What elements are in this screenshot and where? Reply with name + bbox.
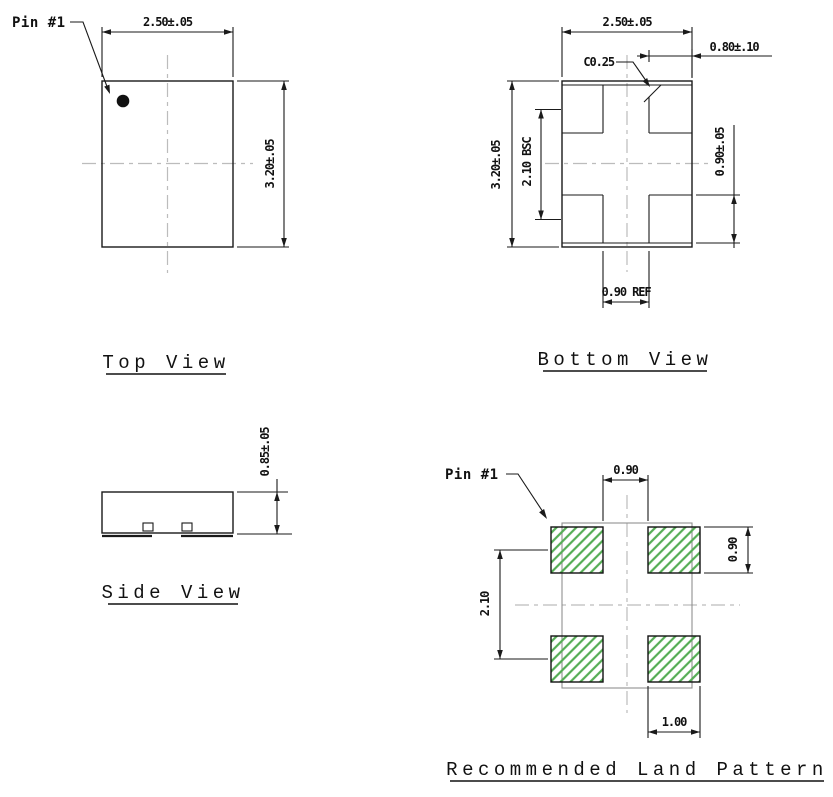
arrowhead [538,110,544,119]
view-title-side: Side View [101,582,244,604]
dimension-pad-height: 0.90±.05 [696,125,740,248]
leader-arrow [643,78,650,87]
arrowhead [274,525,280,534]
land-pad-bottom-left [551,636,603,682]
arrowhead [731,234,737,243]
terminal-notch [143,523,153,531]
dim-text-pad-height: 0.90 [726,537,740,562]
dim-text-pad-width: 1.00 [662,715,687,729]
leader-line [506,474,545,515]
pin1-callout: Pin #1 [445,467,547,519]
view-title-land-pattern: Recommended Land Pattern [446,759,828,781]
dim-text-height: 3.20±.05 [263,139,277,189]
side-view: 0.85±.05 Side View [101,427,292,604]
drawing-page: Pin #1 2.50±.05 3.20±.05 Top View [0,0,833,797]
dim-text-pad-gap: 0.90 REF [602,285,652,299]
pin1-label: Pin #1 [445,467,499,483]
top-view: Pin #1 2.50±.05 3.20±.05 Top View [12,15,289,374]
mechanical-drawing: Pin #1 2.50±.05 3.20±.05 Top View [0,0,833,797]
pin1-label: Pin #1 [12,15,66,31]
dim-text-pad-pitch: 2.10 [478,591,492,616]
land-pad-top-left [551,527,603,573]
arrowhead [224,29,233,35]
view-title-bottom: Bottom View [538,349,713,371]
arrowhead [497,550,503,559]
dim-text-pad-pitch: 2.10 BSC [520,137,534,187]
dim-text-height: 3.20±.05 [489,140,503,190]
package-outline [102,492,233,533]
view-title-top: Top View [102,352,229,374]
arrowhead [692,53,701,59]
land-pattern: Pin #1 0.90 0.90 2.10 [445,463,828,781]
pin1-callout: Pin #1 [12,15,110,94]
land-pad-top-right [648,527,700,573]
arrowhead [640,299,649,305]
dim-text-thickness: 0.85±.05 [258,427,272,477]
dim-text-chamfer: C0.25 [583,55,614,69]
land-pad-bottom-right [648,636,700,682]
bottom-view: 2.50±.05 0.80±.10 C0.25 3.20±.05 [489,15,772,371]
dimension-pad-pitch: 2.10 BSC [520,110,561,220]
arrowhead [274,492,280,501]
arrowhead [603,299,612,305]
arrowhead [648,729,657,735]
arrowhead [731,195,737,204]
chamfer-callout: C0.25 [583,55,650,87]
dim-text-pad-width: 0.80±.10 [710,40,760,54]
pad-bottom-right [649,195,692,243]
dim-text-width: 2.50±.05 [143,15,193,29]
pad-bottom-left [562,195,603,243]
arrowhead [683,29,692,35]
terminal-notch [182,523,192,531]
pin1-dot [117,95,130,108]
arrowhead [639,477,648,483]
arrowhead [691,729,700,735]
arrowhead [603,477,612,483]
leader-arrow [539,509,547,519]
dim-text-width: 2.50±.05 [603,15,653,29]
pad-top-right [644,85,692,133]
arrowhead [538,211,544,220]
arrowhead [745,564,751,573]
pad-top-left [562,85,603,133]
arrowhead [640,53,649,59]
pad-chamfer-edge [644,85,661,102]
arrowhead [281,81,287,90]
arrowhead [102,29,111,35]
dim-text-pad-gap: 0.90 [613,463,638,477]
dim-text-pad-height: 0.90±.05 [713,127,727,177]
dimension-pad-height: 0.90 [704,527,753,573]
arrowhead [562,29,571,35]
dimension-thickness: 0.85±.05 [237,427,292,534]
leader-arrow [104,85,110,94]
dimension-pad-width: 0.80±.10 [637,40,772,78]
arrowhead [509,81,515,90]
dimension-pad-gap: 0.90 [603,463,648,521]
dimension-pad-width: 1.00 [648,686,700,738]
arrowhead [281,238,287,247]
arrowhead [745,527,751,536]
arrowhead [509,238,515,247]
arrowhead [497,650,503,659]
